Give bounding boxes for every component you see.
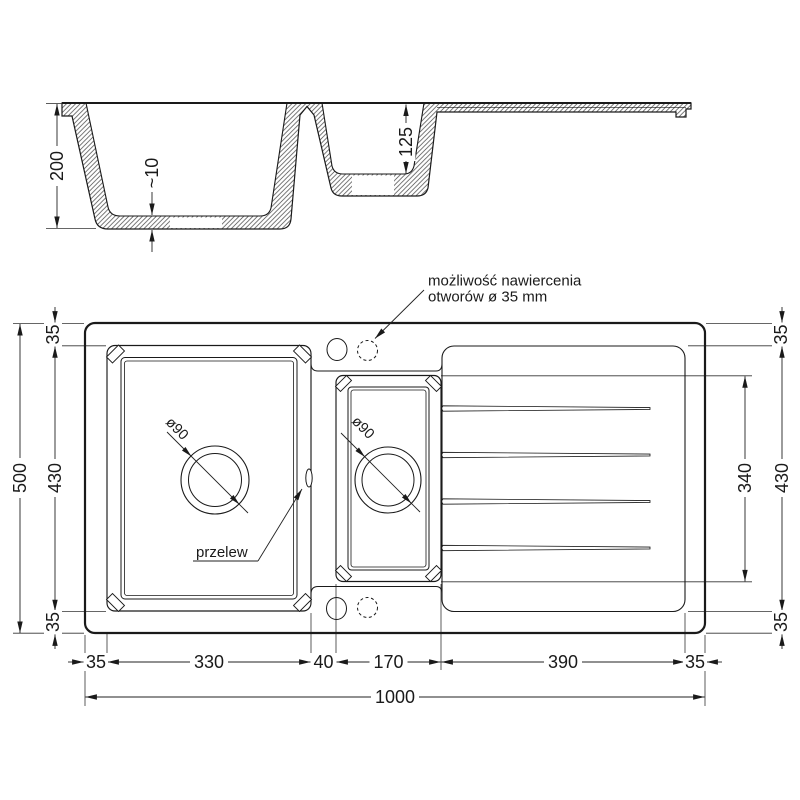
- svg-text:35: 35: [771, 324, 791, 344]
- tap-deck-bottom-contour: [311, 587, 442, 595]
- dim-bottom-5: 35: [685, 652, 705, 672]
- svg-text:35: 35: [771, 612, 791, 632]
- dim-bottom-4: 390: [548, 652, 578, 672]
- section-drain-recess-main: [170, 218, 222, 229]
- dim-floor-thickness: ~10: [142, 158, 162, 189]
- dim-overall-width: 1000: [85, 687, 704, 707]
- dim-right-margins: 35 430 35: [771, 307, 792, 649]
- drainer-groove: [442, 406, 650, 411]
- tap-deck-top-contour: [311, 364, 442, 372]
- drain-main-diameter-label: ø90: [162, 415, 191, 444]
- sink-technical-drawing: 200 ~10 125: [0, 0, 800, 800]
- note-line-1: możliwość nawiercenia: [428, 273, 582, 290]
- tap-hole-optional-top: [358, 341, 378, 361]
- dim-overall-height: 500: [10, 324, 30, 633]
- tap-hole-bottom: [327, 598, 347, 620]
- svg-text:430: 430: [772, 463, 792, 493]
- extension-lines: [13, 324, 790, 707]
- section-view: 200 ~10 125: [46, 103, 691, 252]
- svg-text:340: 340: [735, 463, 755, 493]
- drainer-board: [442, 346, 685, 612]
- tap-holes: [327, 339, 378, 620]
- section-drain-recess-small: [352, 176, 394, 196]
- overflow: przelew: [193, 469, 312, 561]
- dim-left-margins: 35 430 35: [43, 307, 65, 649]
- dim-drainer-span: 340: [735, 376, 755, 581]
- dim-bottom-row: 35 330 40 170 390 35: [68, 652, 722, 672]
- drain-main: ø90: [162, 415, 249, 514]
- svg-text:1000: 1000: [375, 687, 415, 707]
- svg-text:500: 500: [10, 463, 30, 493]
- svg-text:35: 35: [43, 324, 63, 344]
- svg-text:35: 35: [43, 612, 63, 632]
- dim-depth-total: 200: [47, 151, 67, 181]
- main-bowl: [107, 345, 312, 612]
- tap-hole-optional-bottom: [358, 598, 378, 618]
- drain-small-diameter-label: ø90: [348, 414, 377, 443]
- overflow-slot: [306, 469, 312, 487]
- dim-bottom-3: 170: [373, 652, 403, 672]
- section-main-bowl-cavity: [86, 103, 287, 216]
- drilling-note: możliwość nawiercenia otworów ø 35 mm: [375, 273, 582, 339]
- note-line-2: otworów ø 35 mm: [428, 289, 547, 306]
- dim-bottom-0: 35: [86, 652, 106, 672]
- plan-view: ø90 ø90 przelew możliwość nawiercenia ot…: [10, 273, 792, 708]
- small-bowl: [336, 376, 442, 582]
- svg-text:430: 430: [45, 463, 65, 493]
- dim-bottom-2: 40: [313, 652, 333, 672]
- drainer-groove: [442, 545, 650, 550]
- drainer-groove: [442, 499, 650, 504]
- dim-bottom-1: 330: [194, 652, 224, 672]
- drainer-groove: [442, 452, 650, 457]
- tap-hole-top: [327, 339, 347, 361]
- overflow-label: przelew: [196, 544, 248, 561]
- drain-small: ø90: [341, 414, 421, 513]
- dim-small-bowl-depth: 125: [396, 127, 416, 157]
